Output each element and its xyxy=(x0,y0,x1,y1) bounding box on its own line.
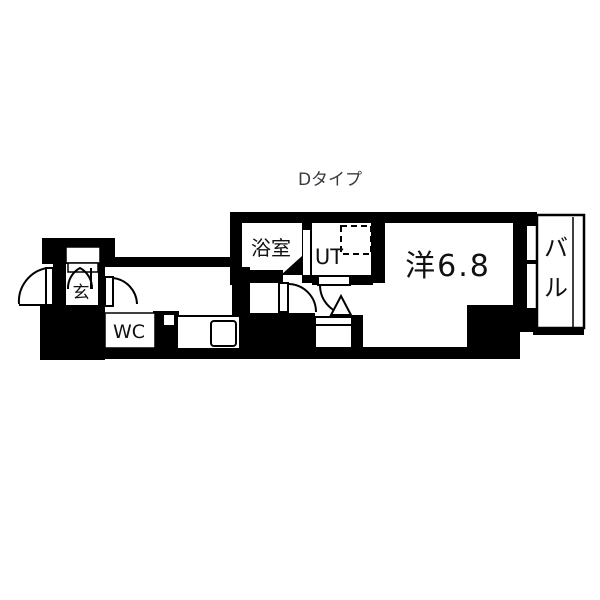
wall-strip-right-of-fixture xyxy=(352,315,363,348)
corridor-kitchen-floor xyxy=(105,267,232,313)
wall-corridor-top xyxy=(103,257,233,267)
wall-ut-right xyxy=(371,212,385,283)
bath-label: 浴室 xyxy=(251,236,291,260)
front-door-swing-arc xyxy=(19,268,47,304)
balcony-label-char1: バ xyxy=(544,234,568,262)
floor-plan-svg: Dタイプ 浴室 UT 洋6.8 WC 玄 バ ル xyxy=(0,0,600,600)
window-lower xyxy=(527,264,536,308)
bath-sliding-door-gap xyxy=(303,230,310,275)
wc-door-leaf xyxy=(105,277,113,306)
kitchen-sink xyxy=(211,321,236,346)
plan-title: Dタイプ xyxy=(298,170,362,190)
window-upper xyxy=(527,226,536,260)
ut-door-leaf xyxy=(318,276,350,285)
shoe-cabinet-upper xyxy=(66,247,100,263)
wc-label: WC xyxy=(113,321,145,343)
main-room-label: 洋6.8 xyxy=(405,249,491,284)
balcony-outline xyxy=(537,215,584,328)
balcony-label-char2: ル xyxy=(544,274,568,302)
wall-niche-dot xyxy=(164,315,174,325)
wall-step-bottom-right xyxy=(467,305,520,359)
wall-band-mid xyxy=(232,313,315,348)
front-door-leaf xyxy=(46,268,53,305)
utility-label: UT xyxy=(315,245,343,269)
floorplan-page: Dタイプ 浴室 UT 洋6.8 WC 玄 バ ル xyxy=(0,0,600,600)
appliance-space-box xyxy=(315,317,352,348)
wall-hall-column xyxy=(232,267,250,317)
entrance-label: 玄 xyxy=(73,283,90,303)
washer-space-dashed-box xyxy=(341,226,371,254)
wall-mass-bottom-left xyxy=(40,305,105,360)
balcony xyxy=(537,215,584,328)
hall-door-leaf xyxy=(279,283,288,312)
